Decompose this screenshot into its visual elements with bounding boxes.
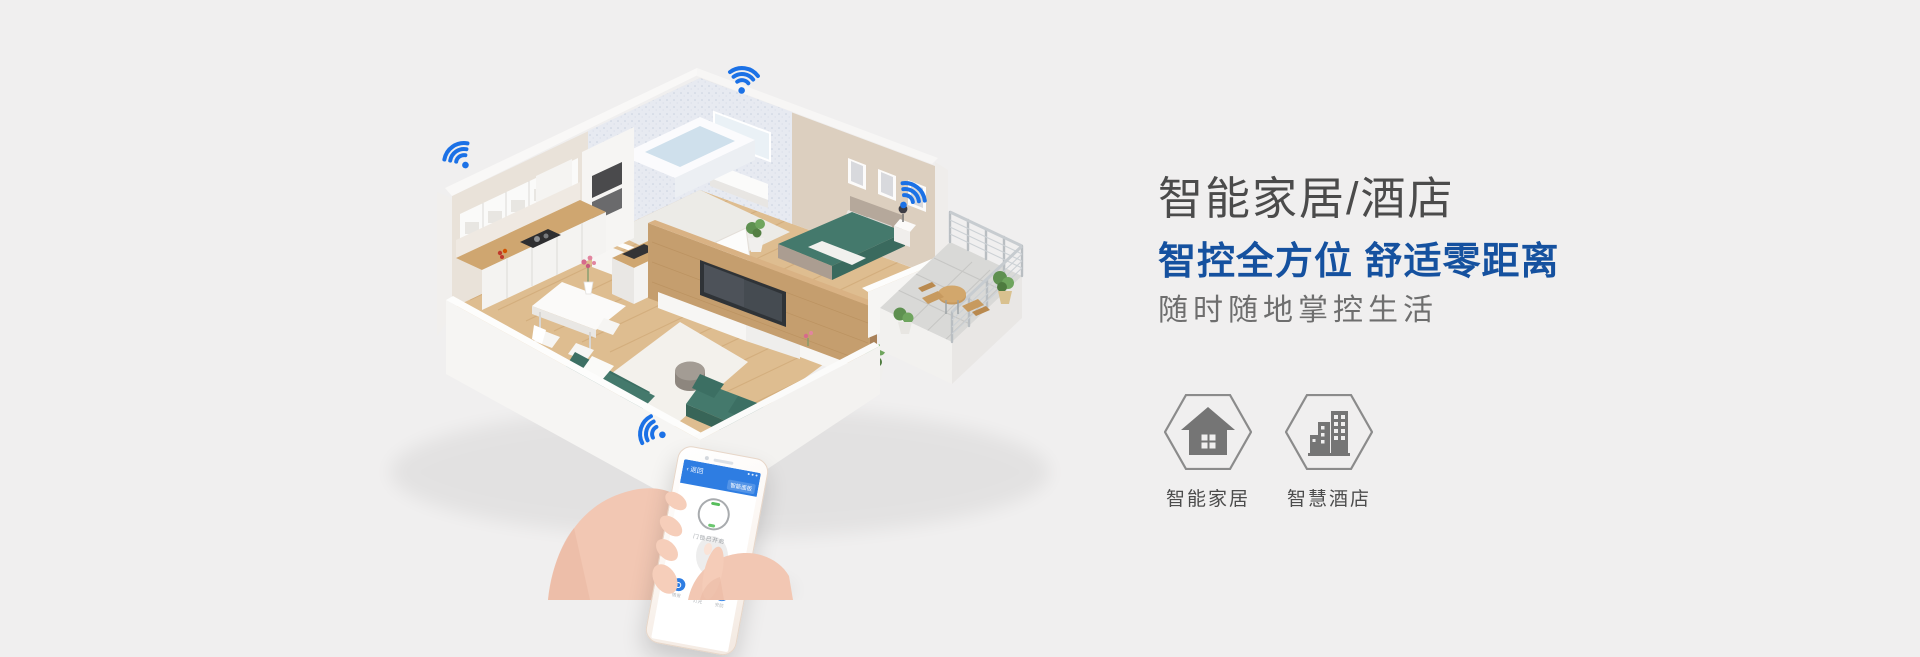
phone-menu-button: 智能面板 (727, 479, 756, 494)
security-button-label: 安防 (714, 602, 724, 610)
hero-banner: ‹ 返回 智能面板 门锁已开启 情景 灯光 (0, 0, 1920, 600)
feature-smart-home[interactable]: 智能家居 (1163, 394, 1253, 511)
hotel-buildings-icon (1285, 394, 1373, 470)
wifi-icon (441, 139, 479, 176)
phone-camera-icon (705, 456, 710, 461)
phone-status-icons (748, 473, 758, 477)
phone-button-row: 情景 灯光 安防 (659, 575, 740, 612)
light-button (691, 581, 708, 598)
feature-list: 智能家居 智慧酒店 (1163, 394, 1374, 511)
smart-lock-dial (695, 496, 732, 533)
hero-tagline: 随时随地掌控生活 (1158, 296, 1438, 326)
scene-button (671, 577, 686, 592)
hero-title: 智能家居/酒店 (1158, 176, 1455, 221)
hero-subtitle: 智控全方位 舒适零距离 (1158, 243, 1560, 281)
feature-smart-hotel[interactable]: 智慧酒店 (1284, 394, 1374, 511)
smart-lock-caption: 门锁已开启 (670, 528, 748, 550)
phone-app-header: ‹ 返回 智能面板 (680, 459, 761, 497)
scene-button-label: 情景 (671, 592, 681, 600)
feature-label: 智慧酒店 (1287, 484, 1371, 511)
feature-label: 智能家居 (1166, 484, 1250, 511)
phone-back-button: ‹ 返回 (686, 463, 705, 476)
light-button-label: 灯光 (693, 598, 703, 606)
isometric-apartment-illustration (0, 0, 1920, 600)
home-icon (1164, 394, 1252, 470)
